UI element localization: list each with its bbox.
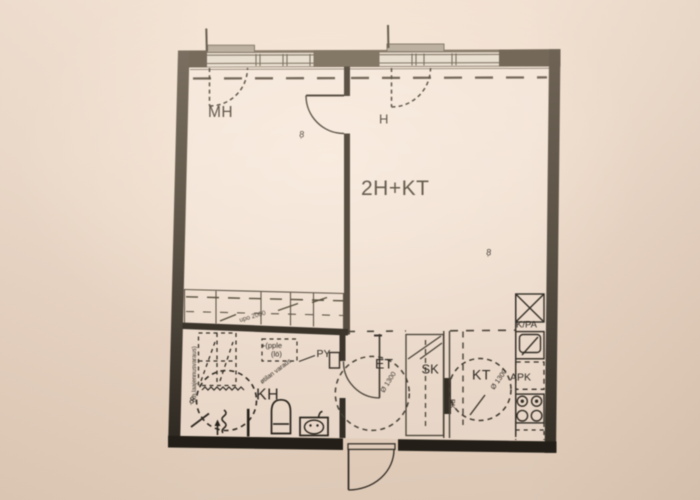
- svg-text:APK: APK: [510, 372, 531, 384]
- svg-text:8̣: 8̣: [486, 247, 492, 257]
- svg-text:KH: KH: [256, 387, 279, 404]
- svg-text:K/PA: K/PA: [516, 320, 538, 331]
- svg-text:(lö): (lö): [271, 350, 282, 359]
- svg-text:MH: MH: [208, 104, 233, 121]
- svg-text:2H+KT: 2H+KT: [361, 177, 429, 200]
- svg-text:8̣: 8̣: [299, 129, 305, 139]
- svg-text:PY: PY: [317, 348, 331, 360]
- svg-text:KT: KT: [472, 367, 491, 383]
- svg-text:ET: ET: [375, 356, 393, 372]
- svg-text:(kh.laajennusvaraus): (kh.laajennusvaraus): [192, 346, 198, 402]
- svg-text:SK: SK: [422, 362, 440, 377]
- svg-text:H: H: [379, 112, 388, 127]
